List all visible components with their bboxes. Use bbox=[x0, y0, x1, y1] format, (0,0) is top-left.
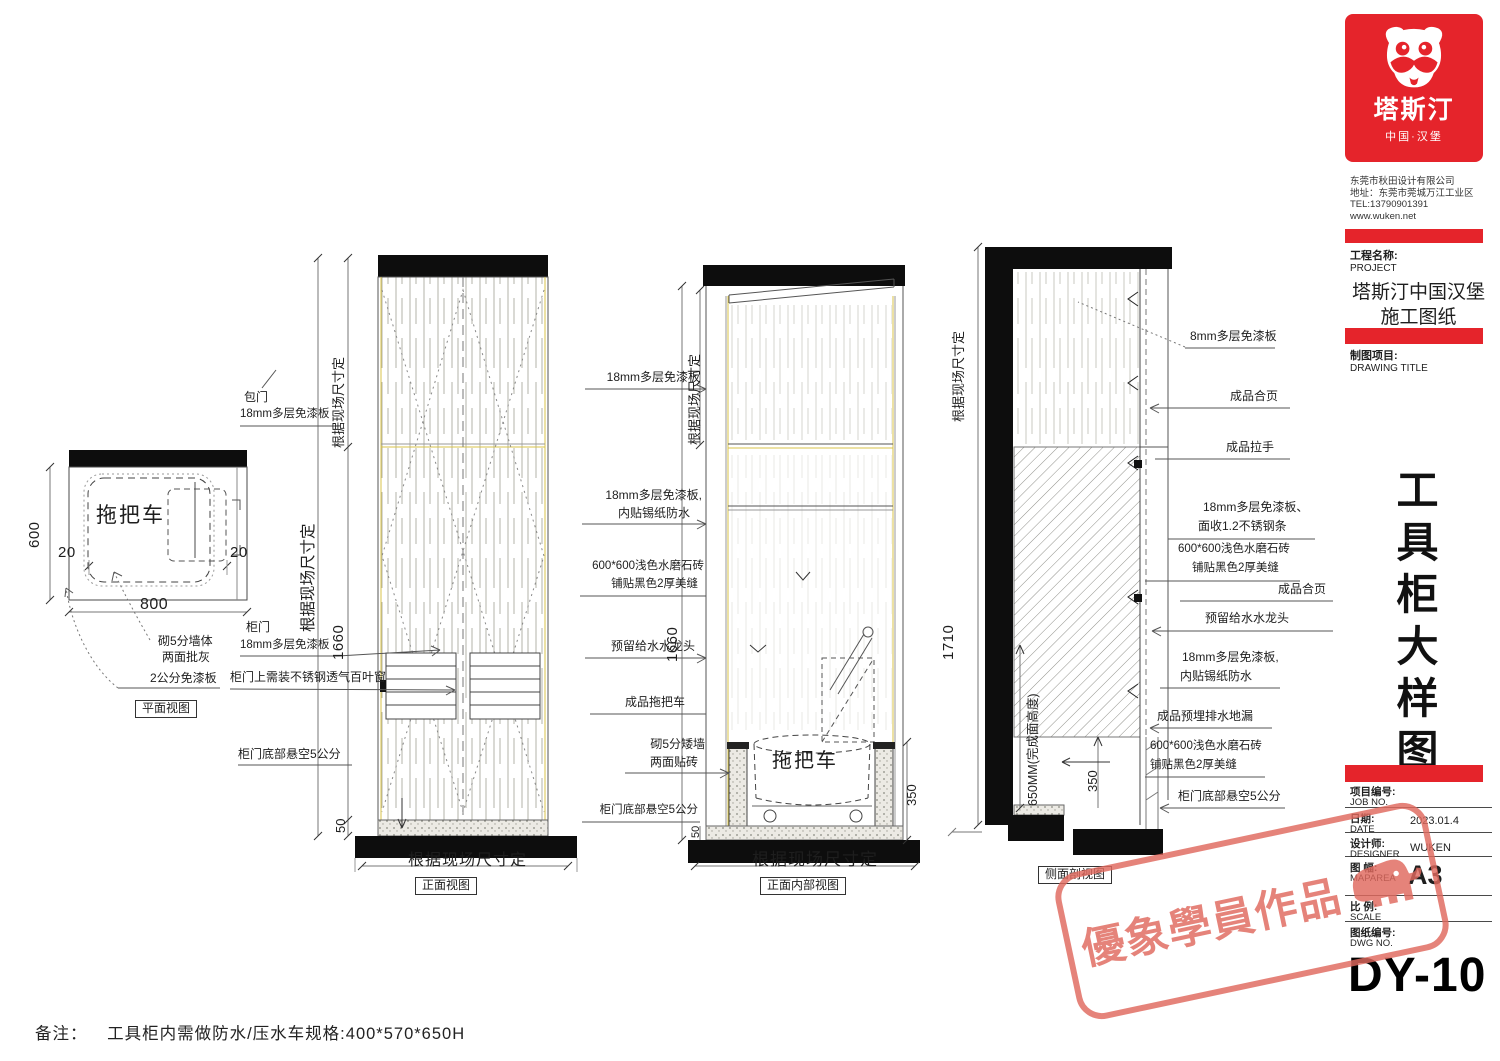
internal-tile-note-2: 铺贴黑色2厚美缝 bbox=[578, 578, 698, 591]
internal-tap-note: 预留给水水龙头 bbox=[585, 640, 695, 654]
front-dim-site-inner: 根据现场尺寸定 bbox=[332, 357, 347, 448]
plan-item-label: 拖把车 bbox=[96, 504, 165, 528]
project-name-line1: 塔斯汀中国汉堡 bbox=[1345, 282, 1492, 304]
note-text: 工具柜内需做防水/压水车规格:400*570*650H bbox=[107, 1025, 465, 1043]
divider-bar-3 bbox=[1345, 765, 1483, 782]
internal-gap-note: 柜门底部悬空5公分 bbox=[580, 804, 698, 817]
front-view-caption: 正面视图 bbox=[415, 877, 477, 895]
section-gap-note: 柜门底部悬空5公分 bbox=[1178, 790, 1281, 804]
front-gap-note: 柜门底部悬空5公分 bbox=[238, 748, 341, 762]
section-hinge-note-b: 成品合页 bbox=[1278, 583, 1326, 597]
internal-top-board-note: 18mm多层免漆板 bbox=[585, 371, 700, 385]
internal-view-caption: 正面内部视图 bbox=[760, 877, 846, 895]
brand-logo-tiger-icon bbox=[1376, 22, 1452, 92]
project-label-cn: 工程名称: bbox=[1350, 250, 1398, 263]
internal-dim-50: 50 bbox=[690, 826, 703, 838]
brand-name: 塔斯汀 bbox=[1373, 90, 1454, 126]
section-dim-height: 1710 bbox=[940, 625, 957, 660]
section-board-note-1a: 18mm多层免漆板、 bbox=[1203, 501, 1308, 515]
plan-dim-right: 20 bbox=[230, 544, 248, 561]
stamp-text: 優象學員作品 bbox=[1075, 862, 1346, 978]
front-door-note-2: 18mm多层免漆板 bbox=[240, 639, 329, 652]
internal-wall-note-2: 两面贴砖 bbox=[628, 756, 698, 770]
drawing-title-label-en: DRAWING TITLE bbox=[1350, 363, 1428, 375]
section-top-note: 8mm多层免漆板 bbox=[1190, 330, 1277, 344]
sheet-note: 备注： 工具柜内需做防水/压水车规格:400*570*650H bbox=[35, 1020, 465, 1044]
internal-cart-note: 成品拖把车 bbox=[590, 696, 685, 710]
plan-board-note: 2公分免漆板 bbox=[150, 672, 217, 686]
internal-dim-350: 350 bbox=[905, 784, 920, 806]
drawing-title-label-cn: 制图项目: bbox=[1350, 350, 1398, 363]
front-vent-note: 柜门上需装不锈钢透气百叶窗 bbox=[230, 671, 386, 685]
plan-dim-height: 600 bbox=[26, 521, 43, 548]
front-dim-site-outer: 根据现场尺寸定 bbox=[300, 523, 318, 632]
front-dim-gap: 50 bbox=[334, 819, 349, 833]
internal-item-label: 拖把车 bbox=[772, 750, 838, 773]
plan-wall-note-1: 砌5分墙体 bbox=[158, 635, 213, 649]
brand-logo: 塔斯汀 中国·汉堡 bbox=[1345, 14, 1483, 162]
front-dim-width: 根据现场尺寸定 bbox=[408, 852, 527, 870]
section-hinge-note-a: 成品合页 bbox=[1230, 390, 1278, 404]
project-name-line2: 施工图纸 bbox=[1345, 307, 1492, 329]
plan-view-drawing bbox=[46, 450, 251, 688]
construction-drawing-sheet: 600 20 20 800 拖把车 砌5分墙体 两面批灰 2公分免漆板 平面视图… bbox=[0, 0, 1500, 1061]
front-wrap-note-2: 18mm多层免漆板 bbox=[240, 408, 329, 421]
section-handle-note: 成品拉手 bbox=[1226, 441, 1274, 455]
elephant-icon bbox=[1329, 824, 1433, 943]
front-wrap-note-1: 包门 bbox=[244, 391, 268, 405]
section-tap-note: 预留给水水龙头 bbox=[1205, 612, 1289, 626]
company-info: 东莞市秋田设计有限公司 地址：东莞市莞城万江工业区 TEL:1379090139… bbox=[1350, 176, 1474, 222]
section-tile-note-1b: 铺贴黑色2厚美缝 bbox=[1192, 562, 1279, 575]
divider-bar-1 bbox=[1345, 229, 1483, 243]
section-tile-note-2a: 600*600浅色水磨石砖 bbox=[1150, 740, 1262, 753]
internal-tile-note-1: 600*600浅色水磨石砖 bbox=[574, 560, 704, 573]
section-board-note-2b: 内贴锡纸防水 bbox=[1180, 670, 1252, 684]
section-board-note-2a: 18mm多层免漆板, bbox=[1182, 651, 1279, 665]
note-label: 备注： bbox=[35, 1025, 88, 1043]
project-label-en: PROJECT bbox=[1350, 263, 1397, 275]
plan-dim-width: 800 bbox=[140, 596, 168, 614]
front-view-drawing bbox=[230, 254, 577, 872]
divider-bar-2 bbox=[1345, 328, 1483, 344]
internal-dim-site: 根据现场尺寸定 bbox=[688, 354, 703, 445]
company-tel: TEL:13790901391 bbox=[1350, 199, 1474, 211]
section-dim-site: 根据现场尺寸定 bbox=[952, 331, 967, 422]
section-drain-note: 成品预埋排水地漏 bbox=[1157, 710, 1253, 724]
sheet-title: 工具柜大样图 bbox=[1384, 468, 1445, 780]
brand-tagline: 中国·汉堡 bbox=[1385, 128, 1443, 144]
plan-view-caption: 平面视图 bbox=[135, 700, 197, 718]
internal-dim-width: 根据现场尺寸定 bbox=[752, 850, 878, 870]
company-address: 地址：东莞市莞城万江工业区 bbox=[1350, 188, 1474, 200]
front-dim-height: 1660 bbox=[330, 625, 347, 660]
section-tile-note-1a: 600*600浅色水磨石砖 bbox=[1178, 543, 1290, 556]
section-board-note-1b: 面收1.2不锈钢条 bbox=[1198, 520, 1287, 534]
internal-liner-note-1: 18mm多层免漆板, bbox=[580, 489, 702, 503]
section-dim-350: 350 bbox=[1086, 770, 1101, 792]
company-name: 东莞市秋田设计有限公司 bbox=[1350, 176, 1474, 188]
section-dim-650: 650MM(完成面高度) bbox=[1026, 693, 1040, 806]
company-web: www.wuken.net bbox=[1350, 211, 1474, 223]
internal-liner-note-2: 内贴锡纸防水 bbox=[580, 507, 690, 521]
internal-wall-note-1: 砌5分矮墙 bbox=[625, 738, 705, 752]
front-door-note-1: 柜门 bbox=[246, 621, 270, 635]
plan-dim-left: 20 bbox=[58, 544, 76, 561]
section-tile-note-2b: 铺贴黑色2厚美缝 bbox=[1150, 759, 1237, 772]
plan-wall-note-2: 两面批灰 bbox=[162, 651, 210, 665]
